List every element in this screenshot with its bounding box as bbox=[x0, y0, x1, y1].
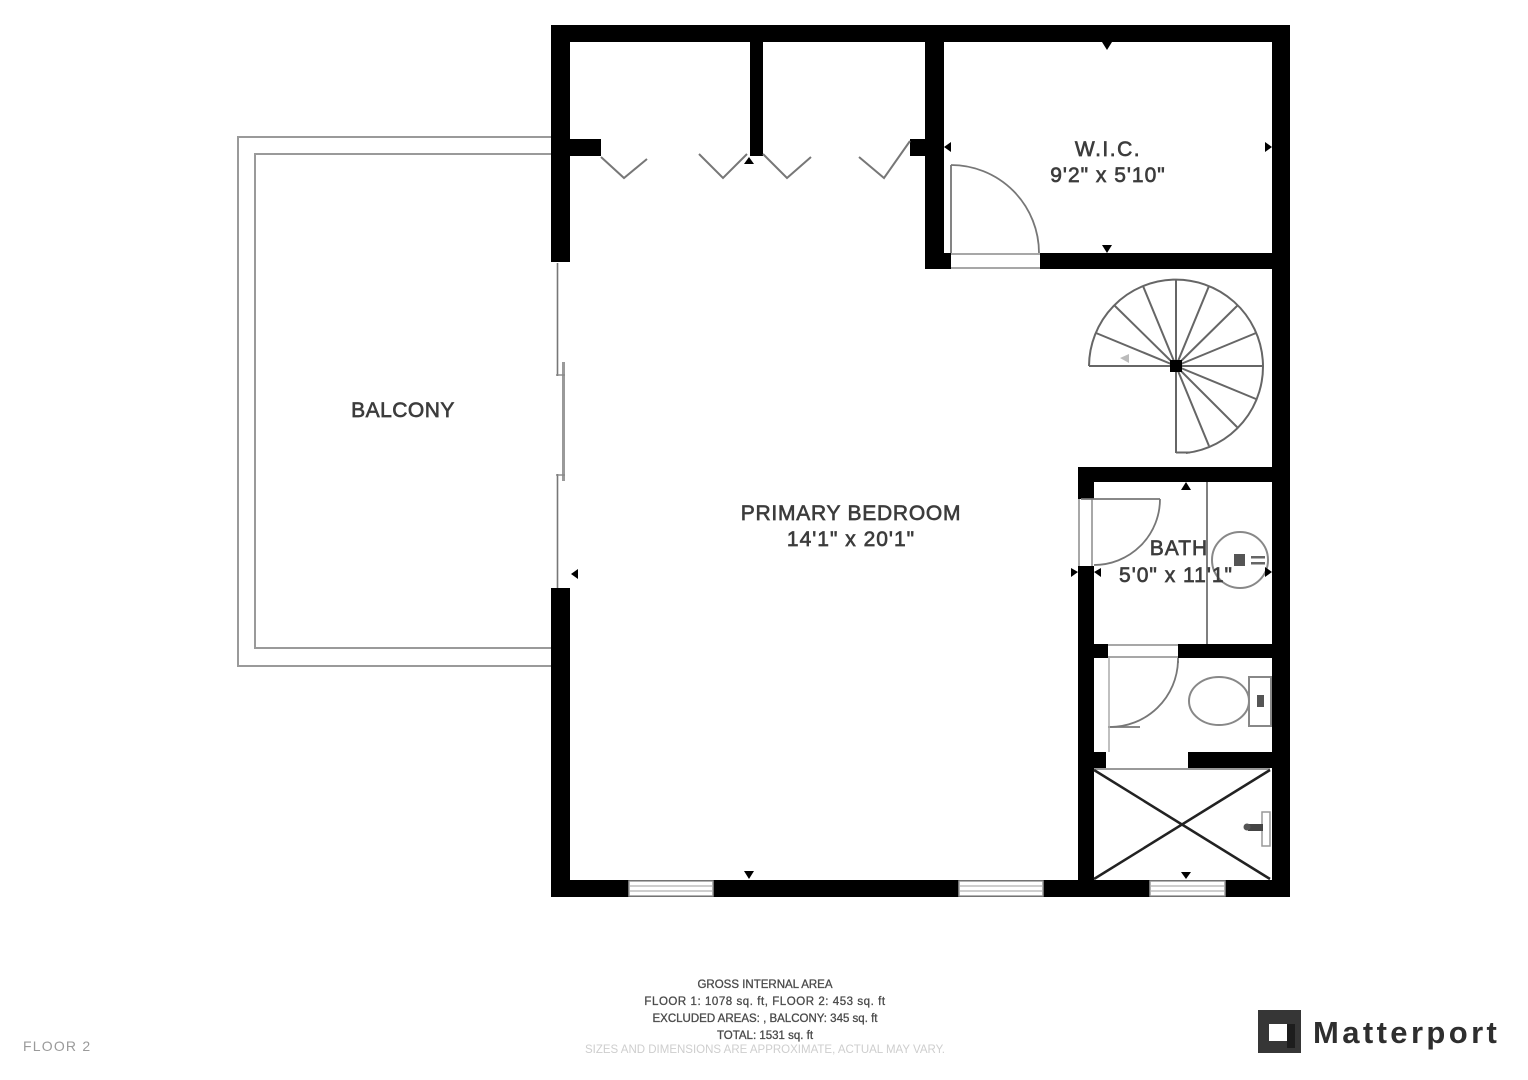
svg-text:GROSS INTERNAL AREA: GROSS INTERNAL AREA bbox=[697, 979, 832, 991]
svg-text:SIZES AND DIMENSIONS ARE APPRO: SIZES AND DIMENSIONS ARE APPROXIMATE, AC… bbox=[585, 1044, 945, 1056]
svg-text:BATH: BATH bbox=[1150, 537, 1208, 560]
svg-text:FLOOR 1: 1078 sq. ft, FLOOR 2:: FLOOR 1: 1078 sq. ft, FLOOR 2: 453 sq. f… bbox=[644, 996, 885, 1008]
svg-text:Matterport: Matterport bbox=[1313, 1015, 1500, 1050]
svg-text:EXCLUDED AREAS: , BALCONY: 345: EXCLUDED AREAS: , BALCONY: 345 sq. ft bbox=[653, 1013, 879, 1025]
svg-text:PRIMARY BEDROOM: PRIMARY BEDROOM bbox=[741, 502, 962, 525]
svg-text:W.I.C.: W.I.C. bbox=[1075, 138, 1141, 161]
svg-text:14'1" x 20'1": 14'1" x 20'1" bbox=[787, 528, 915, 551]
svg-text:TOTAL: 1531 sq. ft: TOTAL: 1531 sq. ft bbox=[717, 1030, 814, 1042]
svg-text:9'2" x 5'10": 9'2" x 5'10" bbox=[1050, 164, 1166, 187]
svg-text:FLOOR 2: FLOOR 2 bbox=[23, 1038, 91, 1054]
svg-text:BALCONY: BALCONY bbox=[351, 399, 455, 422]
svg-text:5'0" x 11'1": 5'0" x 11'1" bbox=[1119, 564, 1233, 587]
